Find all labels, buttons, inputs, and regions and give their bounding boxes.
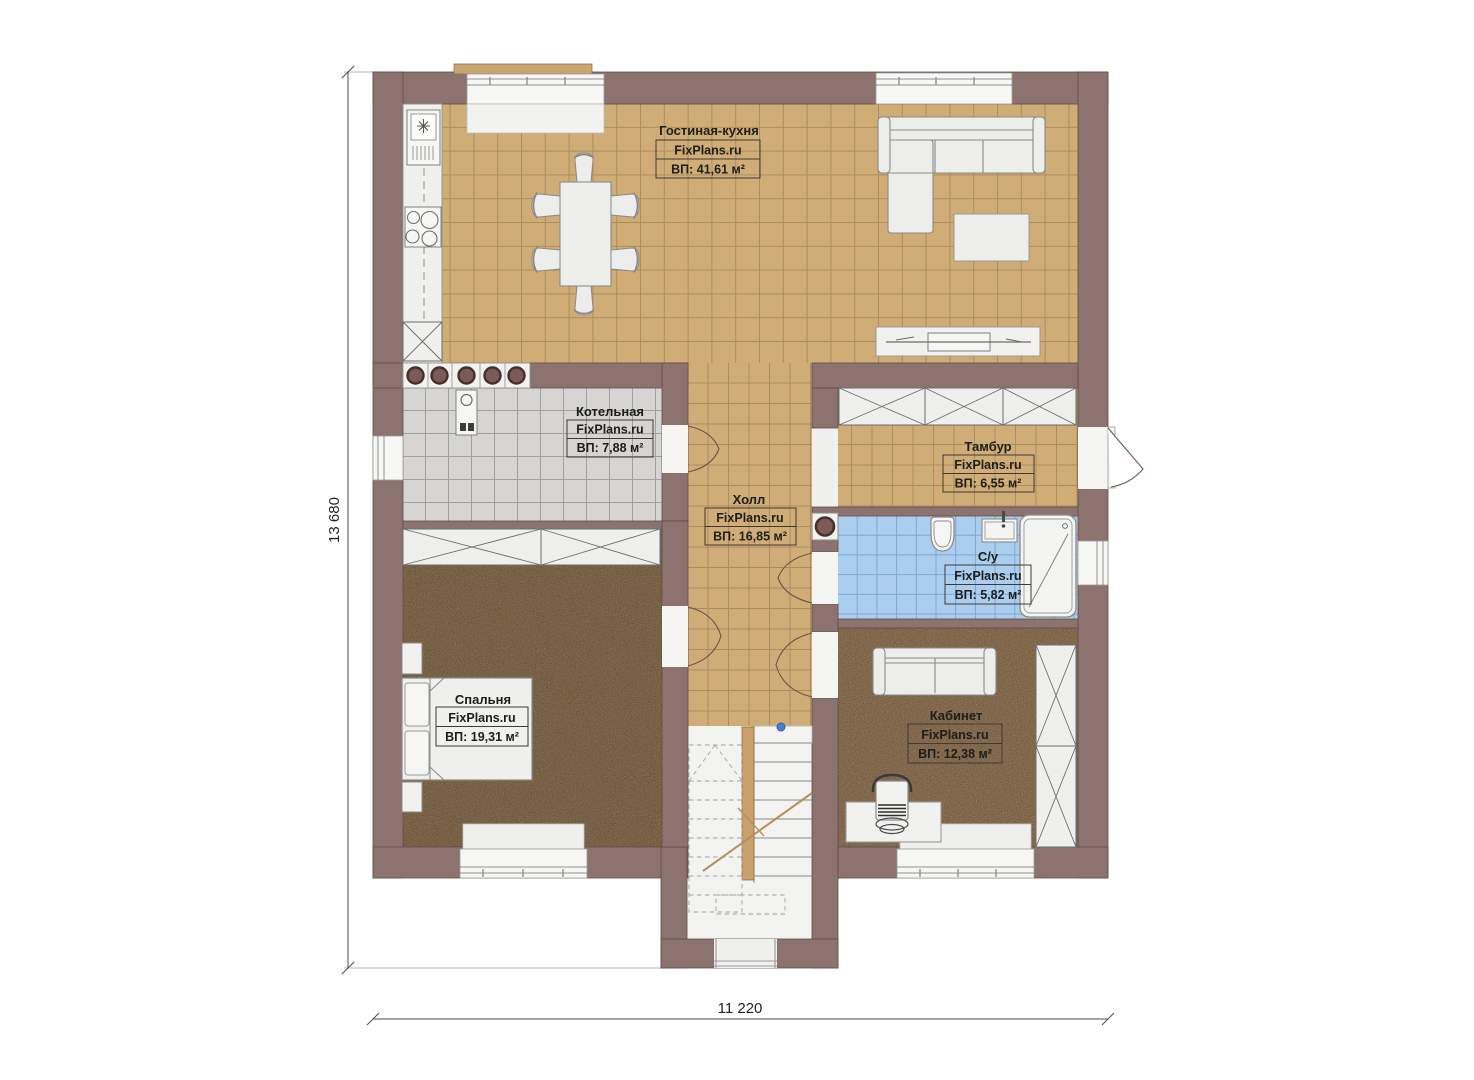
svg-text:11 220: 11 220 [718,1000,763,1017]
svg-text:FixPlans.ru: FixPlans.ru [576,423,643,437]
svg-text:Холл: Холл [733,492,766,507]
svg-text:ВП: 12,38 м²: ВП: 12,38 м² [918,747,992,761]
svg-text:ВП: 7,88 м²: ВП: 7,88 м² [577,441,644,455]
svg-text:FixPlans.ru: FixPlans.ru [954,569,1021,583]
svg-text:С/у: С/у [978,549,999,564]
svg-text:Гостиная-кухня: Гостиная-кухня [659,123,759,138]
svg-text:FixPlans.ru: FixPlans.ru [716,511,783,525]
svg-text:ВП: 16,85 м²: ВП: 16,85 м² [713,530,787,544]
svg-text:Кабинет: Кабинет [930,708,983,723]
svg-text:FixPlans.ru: FixPlans.ru [954,458,1021,472]
svg-text:ВП: 19,31 м²: ВП: 19,31 м² [445,730,519,744]
svg-text:FixPlans.ru: FixPlans.ru [921,728,988,742]
svg-text:13 680: 13 680 [326,497,343,543]
svg-text:FixPlans.ru: FixPlans.ru [674,144,741,158]
svg-text:Тамбур: Тамбур [964,439,1011,454]
svg-text:ВП: 6,55 м²: ВП: 6,55 м² [955,477,1022,491]
svg-text:Спальня: Спальня [455,692,511,707]
svg-text:ВП: 5,82 м²: ВП: 5,82 м² [955,588,1022,602]
svg-text:ВП: 41,61 м²: ВП: 41,61 м² [671,163,745,177]
svg-text:Котельная: Котельная [576,404,644,419]
svg-text:FixPlans.ru: FixPlans.ru [448,711,515,725]
